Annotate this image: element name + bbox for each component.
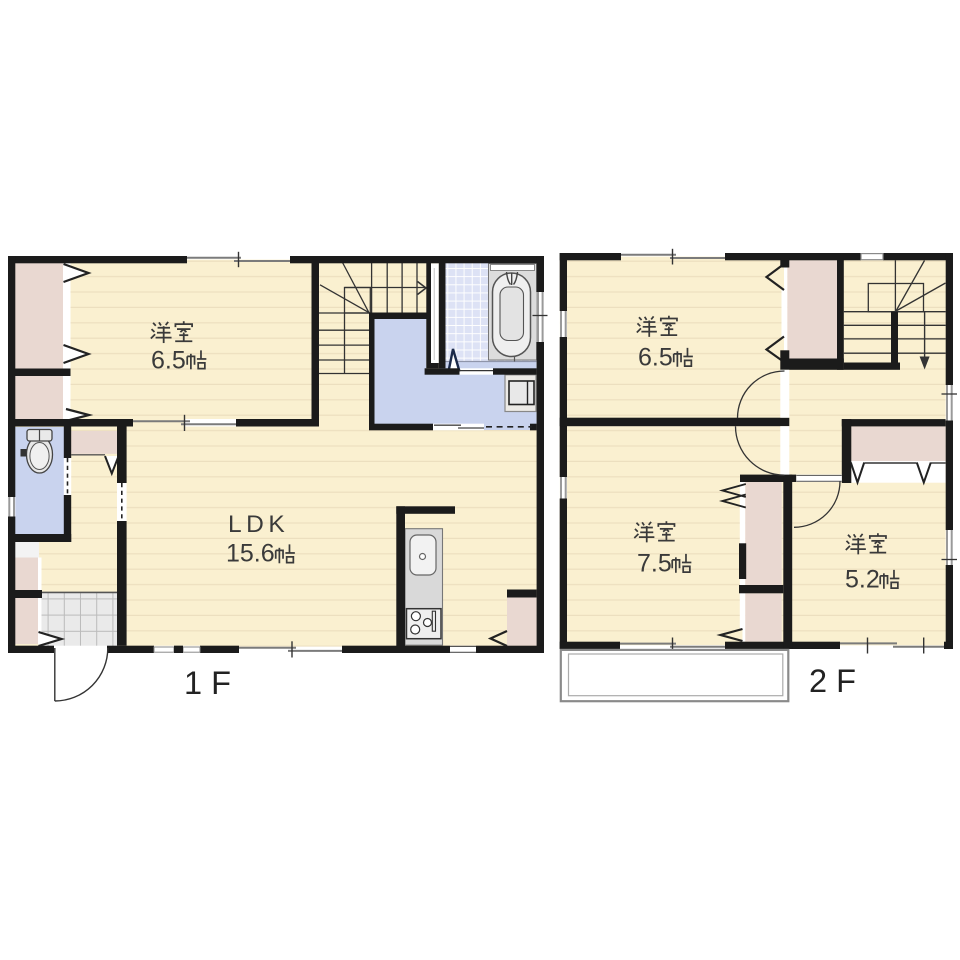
- svg-text:7.5: 7.5: [637, 550, 672, 578]
- svg-text:LDK: LDK: [228, 511, 289, 538]
- svg-text:6.5: 6.5: [151, 347, 186, 375]
- svg-text:1 F: 1 F: [184, 665, 231, 701]
- svg-text:6.5: 6.5: [638, 344, 673, 372]
- svg-text:15.6: 15.6: [226, 540, 275, 568]
- svg-text:5.2: 5.2: [845, 566, 880, 594]
- svg-text:2 F: 2 F: [809, 663, 856, 699]
